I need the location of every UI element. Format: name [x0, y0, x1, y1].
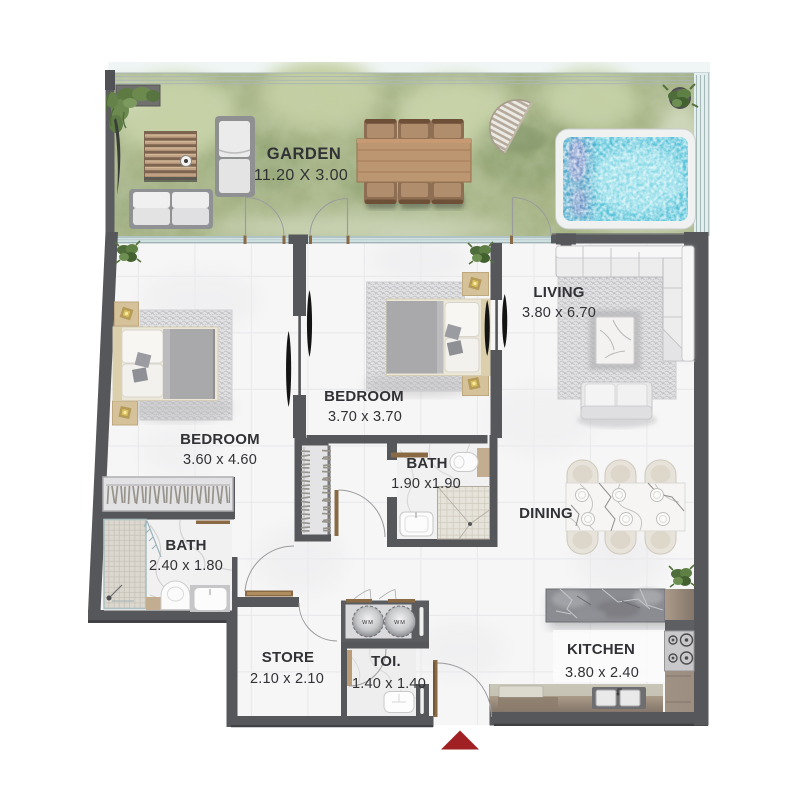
svg-text:TOI.: TOI.: [371, 653, 401, 670]
svg-text:BEDROOM: BEDROOM: [180, 431, 260, 448]
svg-text:3.70 x 3.70: 3.70 x 3.70: [328, 409, 402, 425]
svg-text:BEDROOM: BEDROOM: [324, 388, 404, 405]
svg-text:BATH: BATH: [165, 537, 206, 554]
svg-text:KITCHEN: KITCHEN: [567, 641, 635, 658]
svg-text:3.80 x 6.70: 3.80 x 6.70: [522, 305, 596, 321]
svg-text:LIVING: LIVING: [533, 284, 584, 301]
svg-text:2.40 x 1.80: 2.40 x 1.80: [149, 558, 223, 574]
svg-text:1.40 x 1.40: 1.40 x 1.40: [352, 676, 426, 692]
svg-text:WM: WM: [394, 620, 406, 626]
svg-text:2.10 x 2.10: 2.10 x 2.10: [250, 671, 324, 687]
svg-text:DINING: DINING: [519, 505, 573, 522]
svg-text:3.80 x 2.40: 3.80 x 2.40: [565, 665, 639, 681]
svg-text:BATH: BATH: [406, 455, 447, 472]
svg-text:1.90 x1.90: 1.90 x1.90: [391, 476, 461, 492]
svg-text:11.20 X 3.00: 11.20 X 3.00: [254, 167, 348, 184]
svg-text:GARDEN: GARDEN: [267, 145, 342, 163]
svg-text:WM: WM: [362, 620, 374, 626]
svg-text:3.60 x 4.60: 3.60 x 4.60: [183, 452, 257, 468]
svg-text:STORE: STORE: [262, 649, 314, 666]
